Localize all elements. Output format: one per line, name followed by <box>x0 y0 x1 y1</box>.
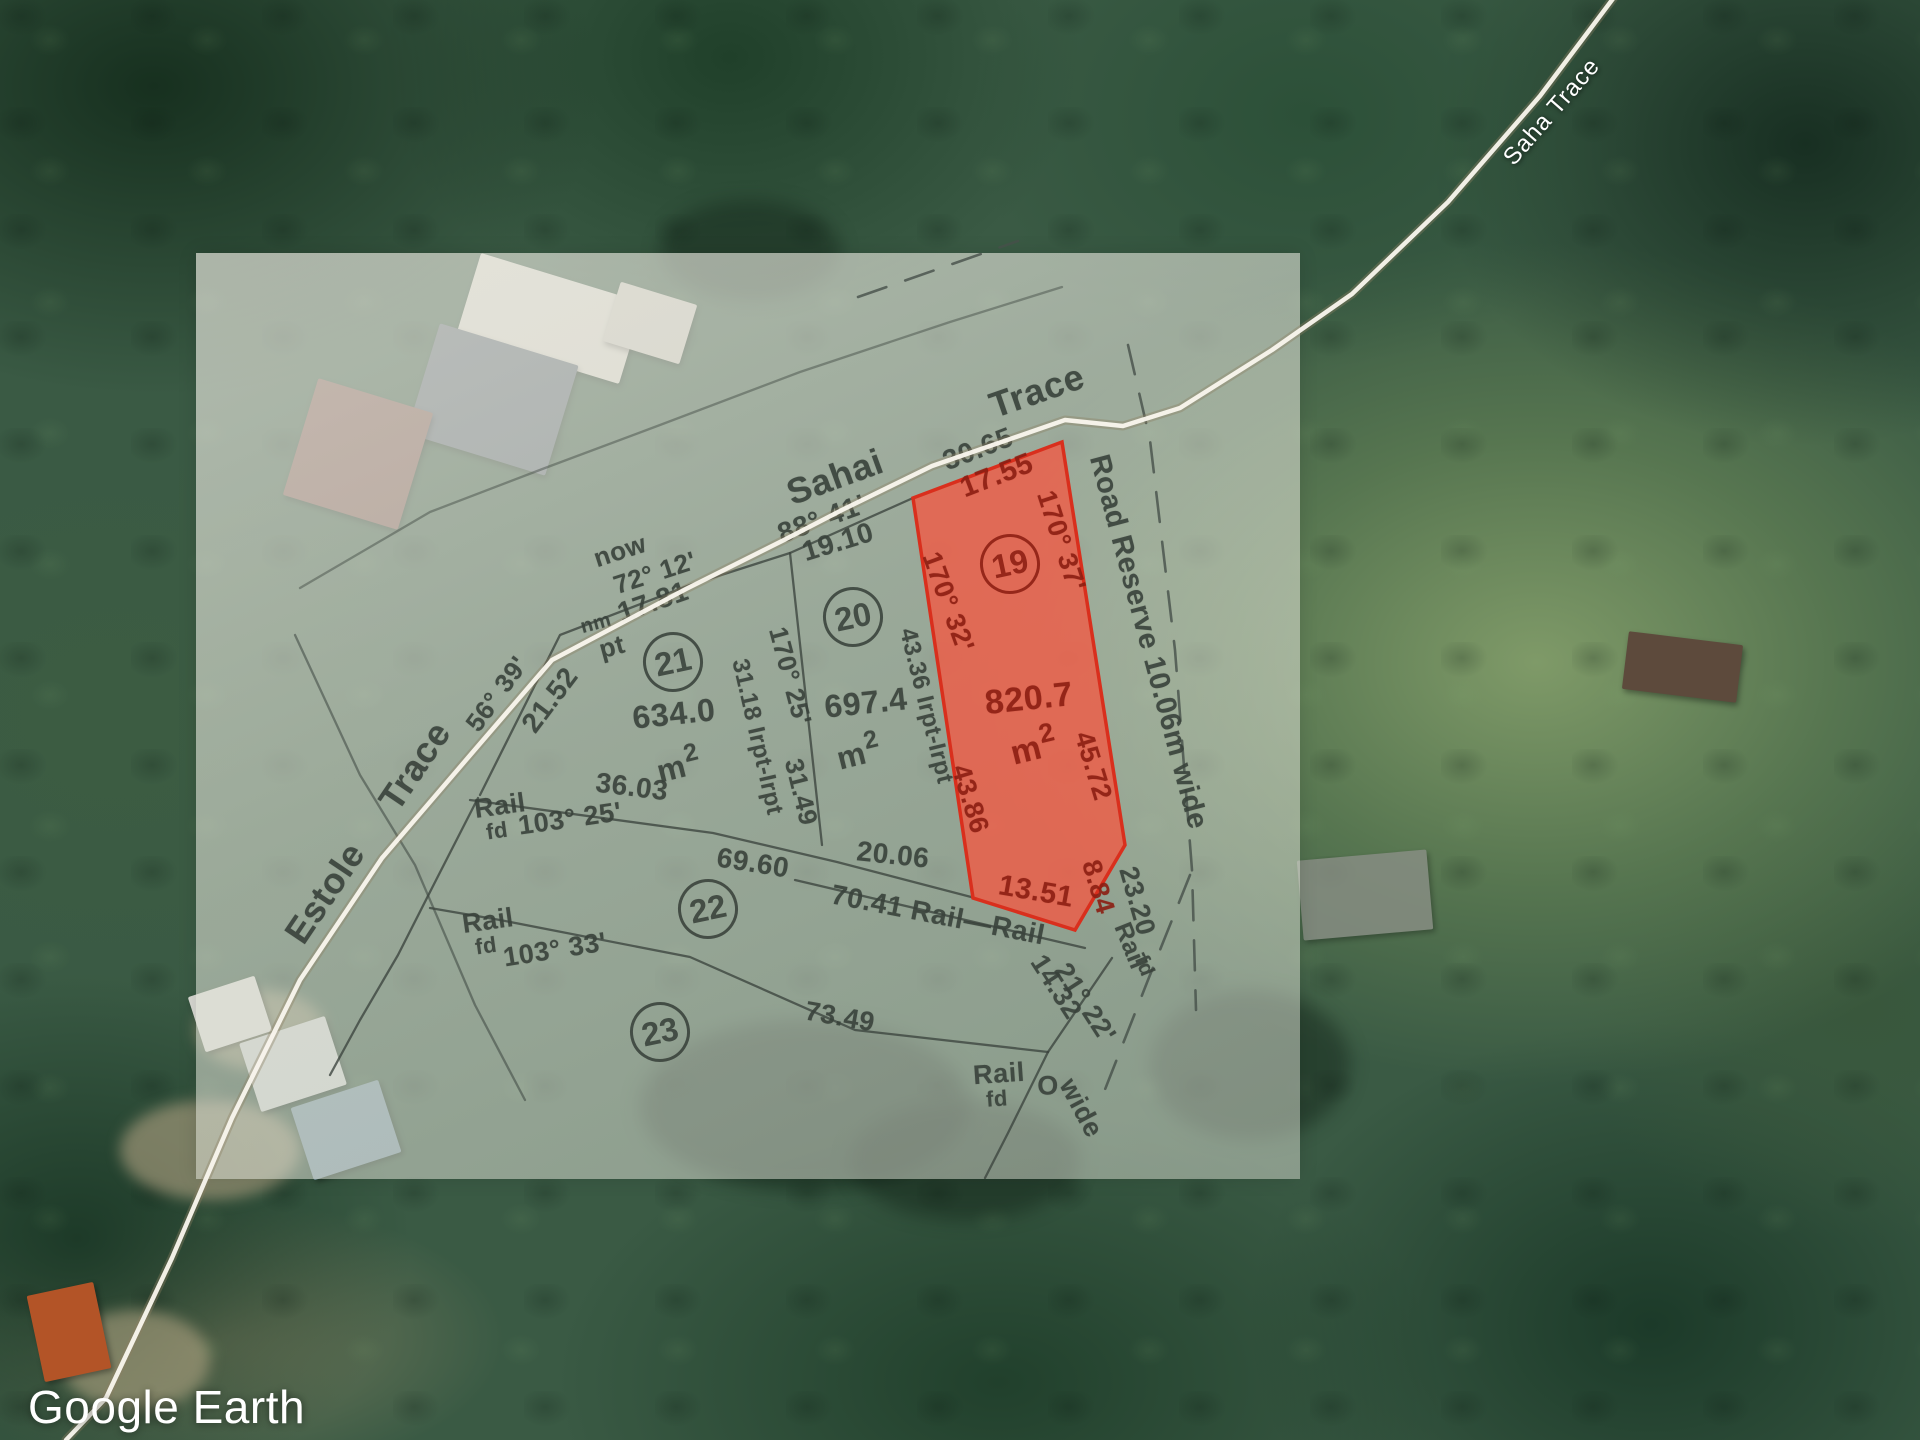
google-earth-watermark: Google Earth <box>28 1380 305 1434</box>
satellite-labels-layer: Saha Trace <box>0 0 1920 1440</box>
google-earth-viewport[interactable]: SahaiTrace30.6588° 41'19.10now72° 12'17.… <box>0 0 1920 1440</box>
road-name-label: Saha Trace <box>1498 53 1606 172</box>
